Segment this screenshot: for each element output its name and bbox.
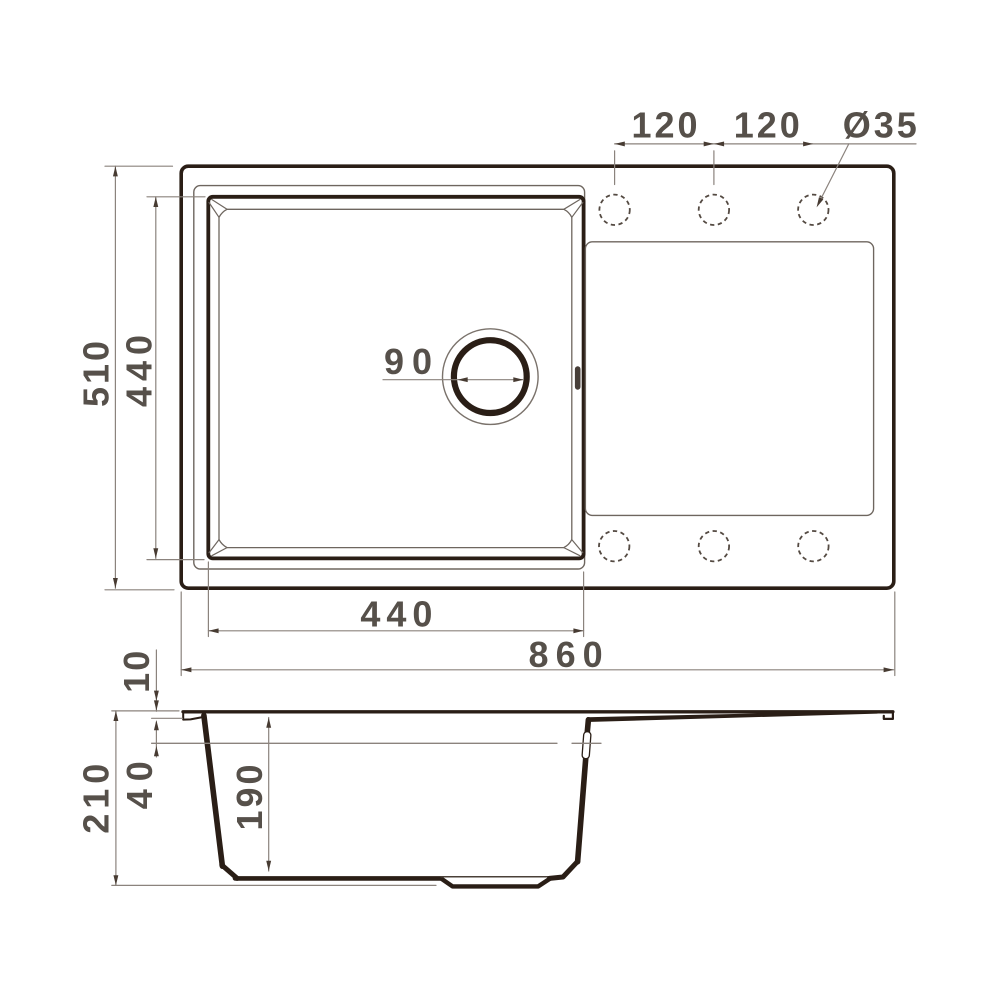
svg-text:860: 860: [529, 634, 610, 675]
svg-text:90: 90: [384, 341, 440, 382]
svg-text:440: 440: [119, 329, 160, 407]
svg-text:510: 510: [76, 338, 117, 407]
svg-text:40: 40: [119, 753, 160, 809]
svg-text:10: 10: [116, 649, 157, 693]
svg-text:120: 120: [631, 105, 700, 146]
svg-text:120: 120: [734, 105, 803, 146]
svg-text:210: 210: [76, 759, 117, 834]
svg-text:190: 190: [229, 761, 270, 830]
svg-text:Ø35: Ø35: [843, 105, 920, 146]
svg-text:440: 440: [360, 594, 438, 635]
